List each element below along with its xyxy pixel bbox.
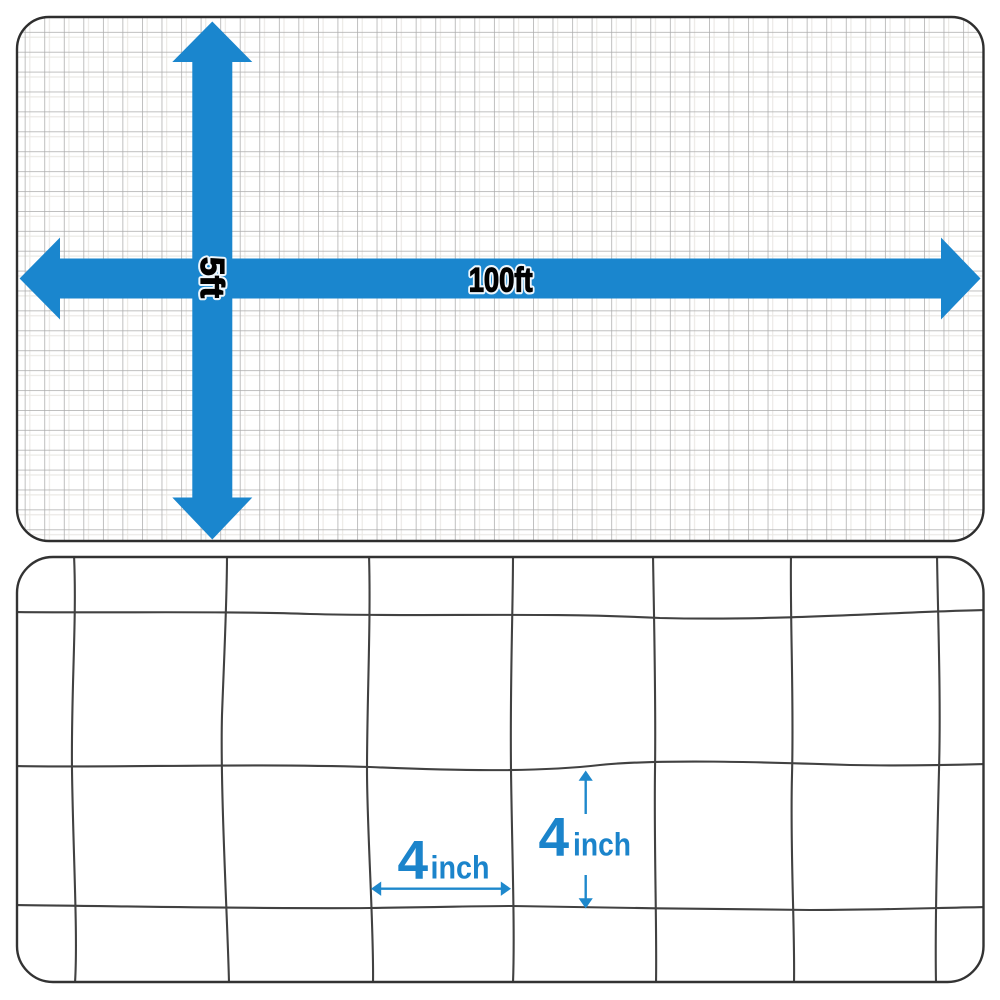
svg-text:4: 4 bbox=[398, 829, 429, 891]
svg-text:100ft: 100ft bbox=[469, 262, 533, 300]
svg-text:inch: inch bbox=[431, 850, 490, 886]
svg-text:4: 4 bbox=[539, 806, 570, 868]
svg-text:5ft: 5ft bbox=[194, 257, 231, 298]
svg-text:inch: inch bbox=[573, 827, 631, 863]
